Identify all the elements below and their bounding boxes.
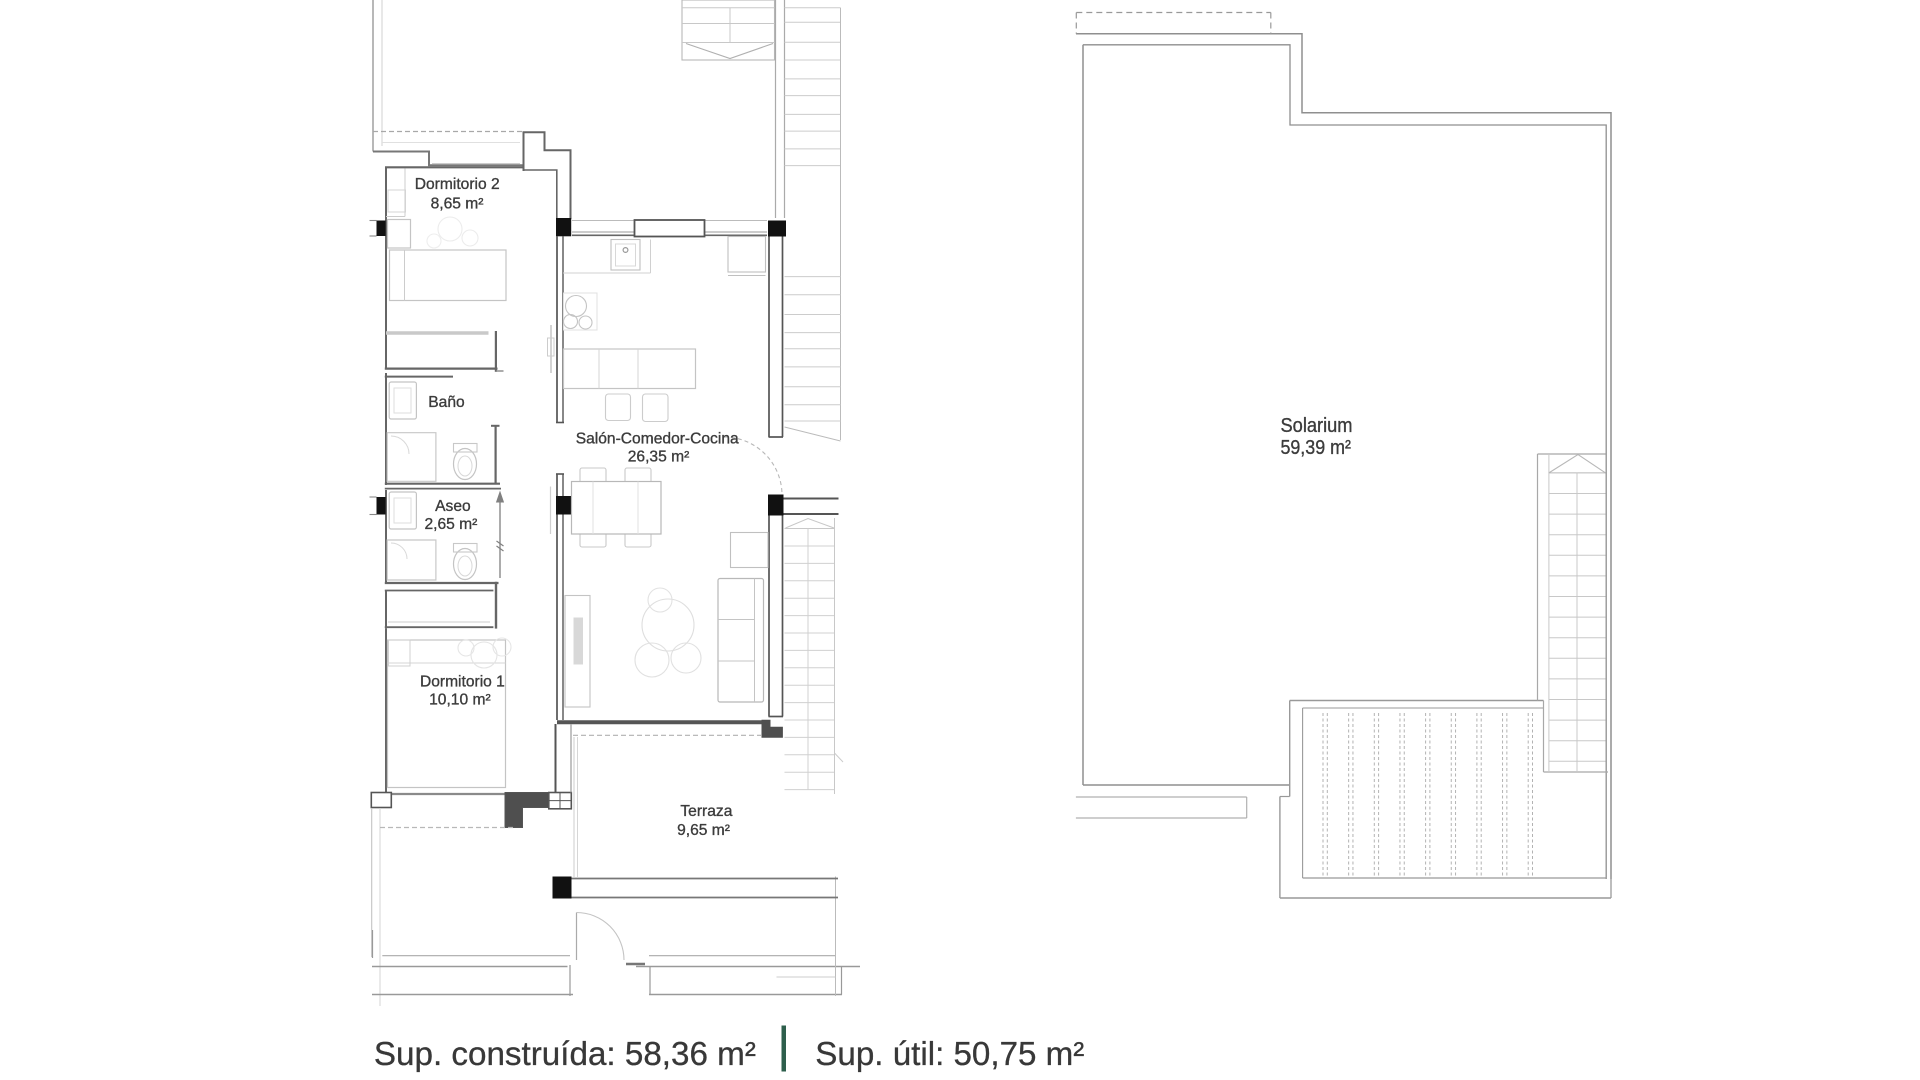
svg-text:59,39 m²: 59,39 m²: [1280, 437, 1351, 459]
svg-text:Dormitorio 1: Dormitorio 1: [420, 673, 505, 690]
svg-text:Sup. útil: 50,75 m²: Sup. útil: 50,75 m²: [815, 1036, 1084, 1073]
svg-text:9,65 m²: 9,65 m²: [677, 822, 730, 839]
svg-text:Sup. construída: 58,36 m²: Sup. construída: 58,36 m²: [374, 1036, 756, 1073]
svg-text:2,65 m²: 2,65 m²: [424, 516, 477, 533]
svg-text:Solarium: Solarium: [1281, 415, 1353, 437]
svg-text:Aseo: Aseo: [435, 498, 471, 515]
svg-text:Salón-Comedor-Cocina: Salón-Comedor-Cocina: [576, 430, 739, 447]
svg-text:Terraza: Terraza: [680, 803, 732, 820]
svg-text:Baño: Baño: [428, 394, 465, 411]
svg-text:10,10 m²: 10,10 m²: [429, 692, 491, 709]
svg-text:8,65 m²: 8,65 m²: [431, 195, 484, 212]
svg-text:26,35 m²: 26,35 m²: [628, 449, 690, 466]
svg-text:Dormitorio 2: Dormitorio 2: [415, 176, 500, 193]
